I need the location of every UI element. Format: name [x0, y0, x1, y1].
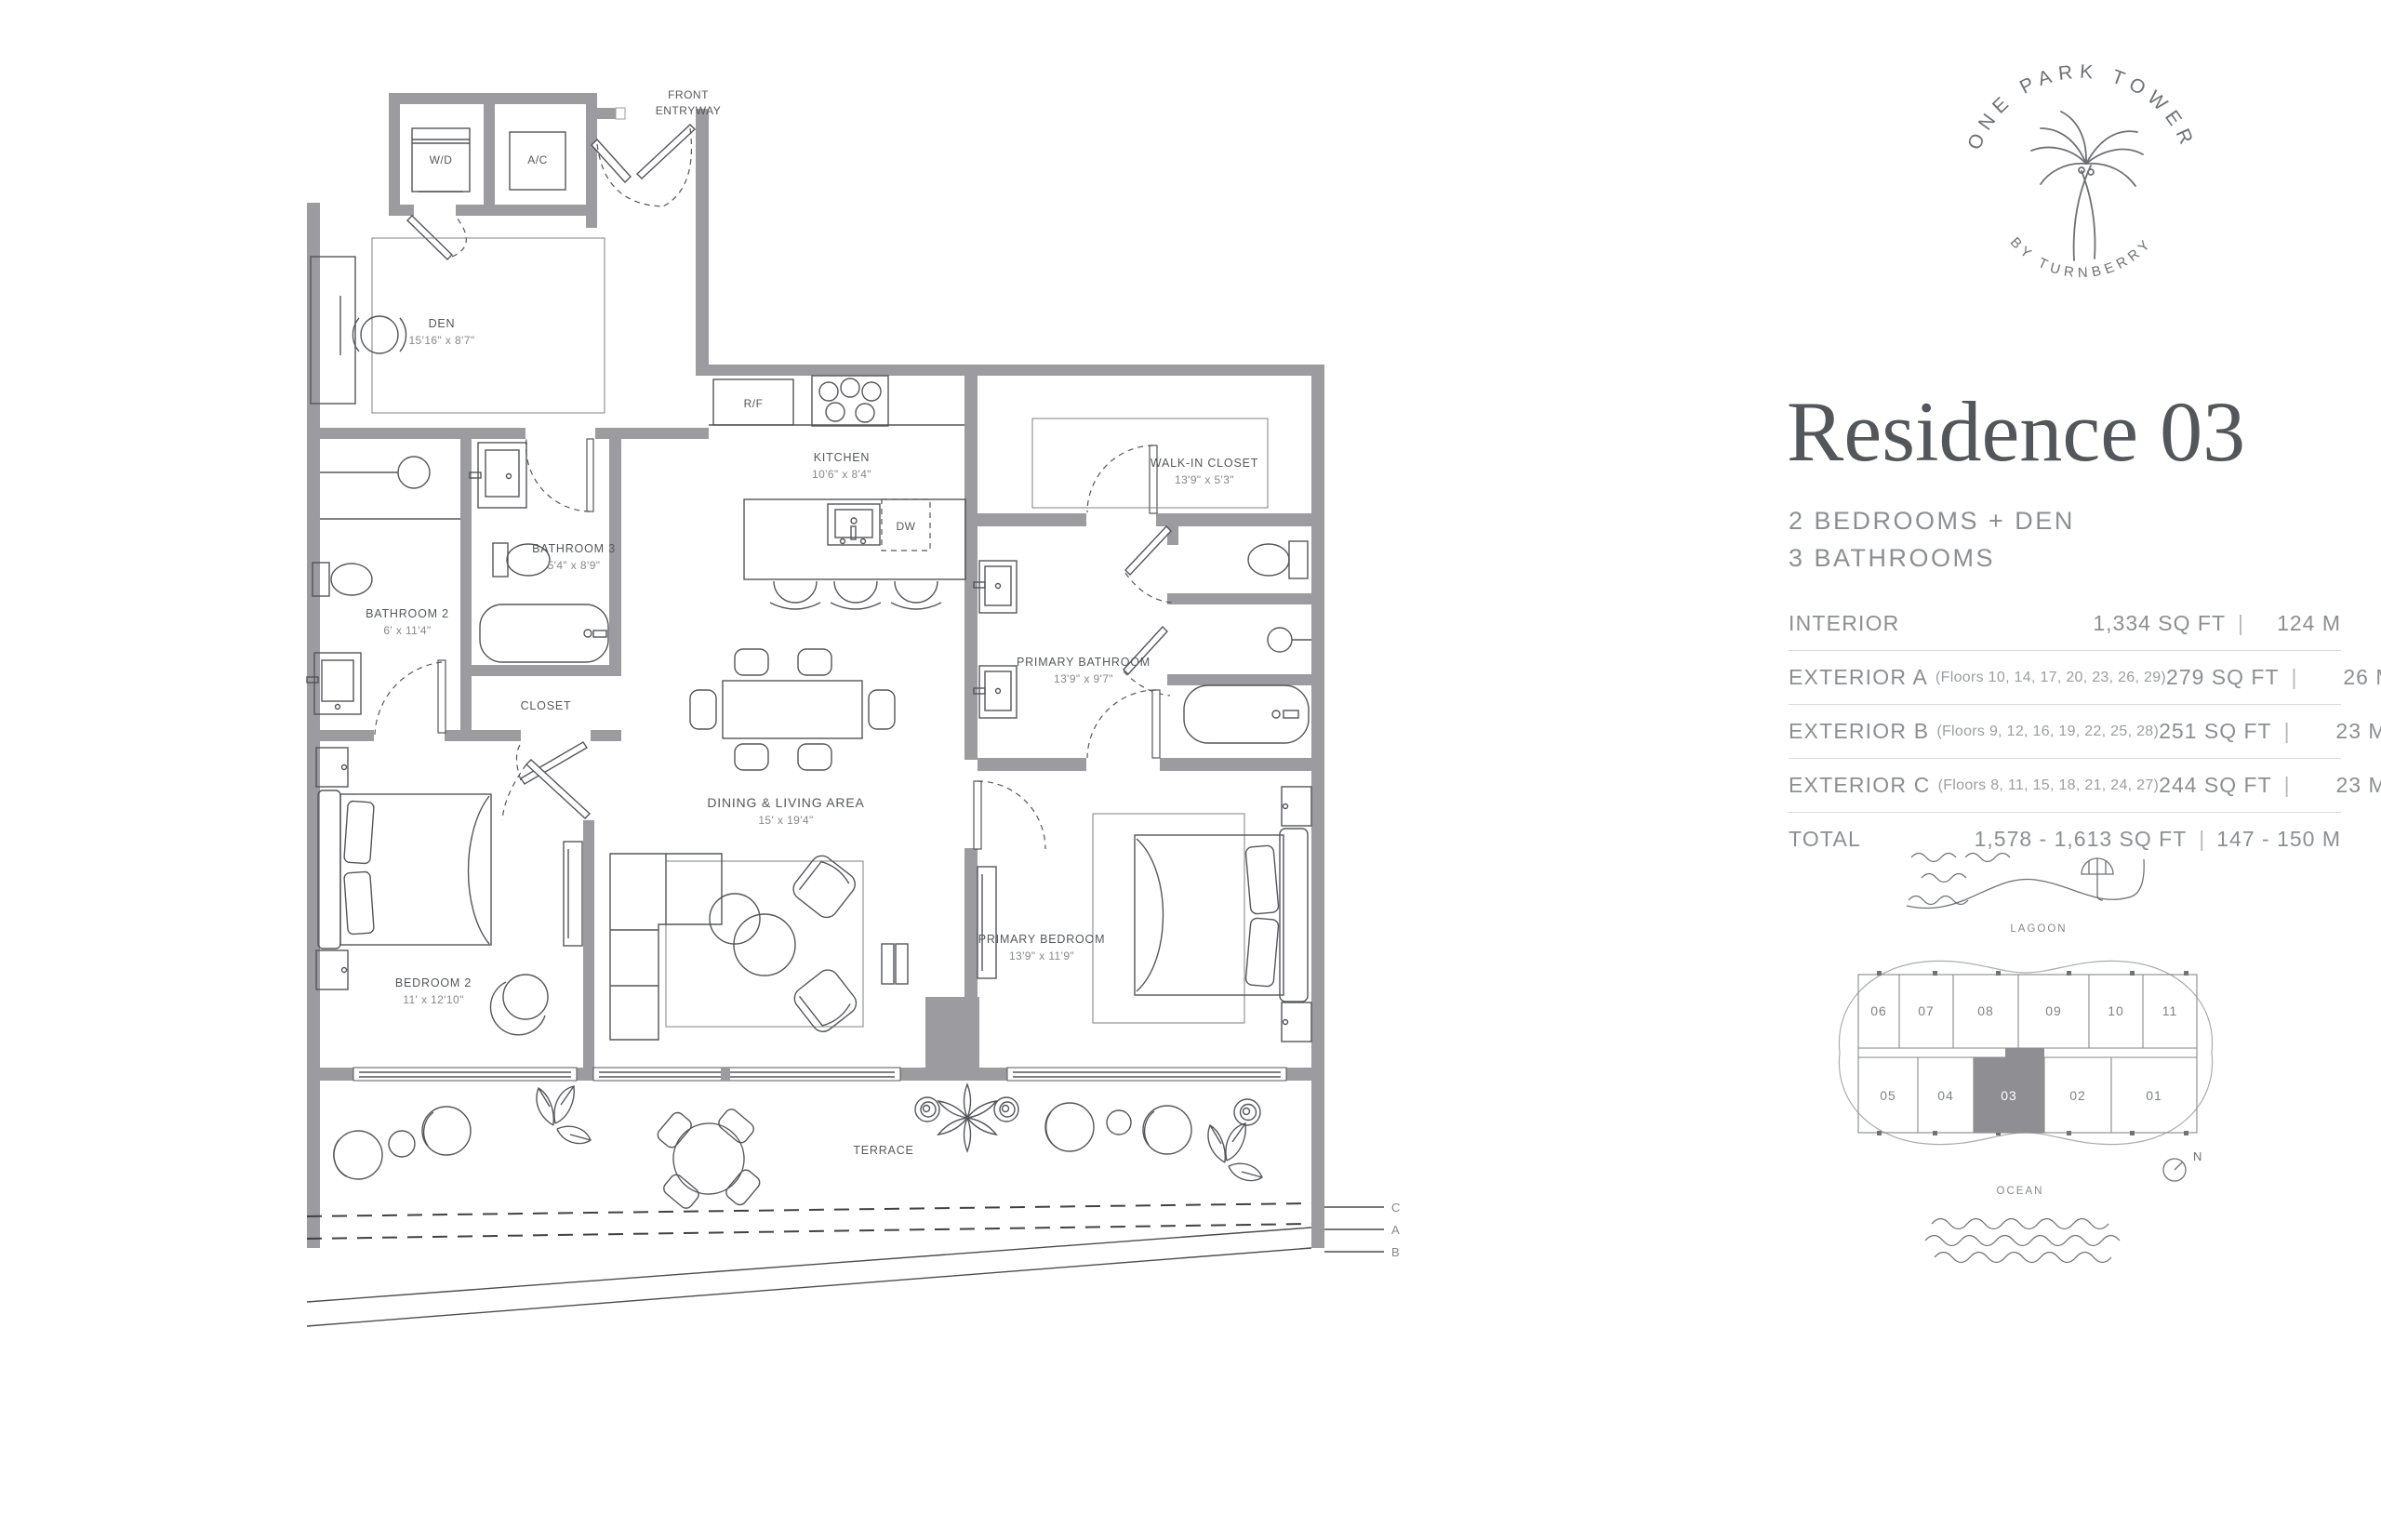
terrace-windows: [353, 1068, 1286, 1081]
unit-05: 05: [1880, 1088, 1896, 1103]
bedroom2-label: BEDROOM 2: [395, 976, 472, 989]
primary-bathroom-label: PRIMARY BATHROOM: [1017, 656, 1151, 669]
primary-bathroom-dims: 13'9" x 9'7": [1054, 672, 1113, 685]
terrace-label: TERRACE: [853, 1144, 913, 1157]
dining-living-dims: 15' x 19'4": [758, 814, 813, 827]
kitchen-dims: 10'6" x 8'4": [812, 468, 871, 481]
walk-in-closet-label: WALK-IN CLOSET: [1151, 457, 1258, 470]
ac-label: A/C: [527, 153, 548, 166]
lagoon-label: LAGOON: [2010, 923, 2067, 935]
svg-text:N: N: [2193, 1149, 2201, 1163]
walk-in-closet-dims: 13'9" x 5'3": [1175, 473, 1234, 486]
exterior-line-a-label: A: [1391, 1223, 1400, 1237]
exterior-line-b-label: B: [1391, 1245, 1400, 1259]
unit-10: 10: [2108, 1003, 2124, 1018]
residence-subtitle: 2 BEDROOMS + DEN 3 BATHROOMS: [1789, 502, 2075, 577]
lagoon-waves-icon: [1907, 854, 2144, 909]
logo-arc-bottom-text: BY TURNBERRY: [2007, 234, 2156, 281]
bedroom2-dims: 11' x 12'10": [403, 993, 463, 1006]
unit-03: 03: [2001, 1088, 2017, 1103]
table-row-exterior-c: EXTERIOR C (Floors 8, 11, 15, 18, 21, 24…: [1789, 759, 2341, 813]
ocean-waves-icon: [1925, 1219, 2120, 1263]
bathroom2-dims: 6' x 11'4": [383, 624, 431, 637]
kitchen-label: KITCHEN: [814, 451, 870, 464]
north-compass-icon: N: [2163, 1149, 2201, 1181]
bathroom2-label: BATHROOM 2: [366, 607, 449, 620]
exterior-line-c-label: C: [1391, 1201, 1400, 1215]
wd-label: W/D: [430, 153, 453, 166]
den-label: DEN: [429, 317, 456, 330]
unit-06: 06: [1870, 1003, 1887, 1018]
closet-label: CLOSET: [521, 699, 572, 712]
unit-04: 04: [1937, 1088, 1954, 1103]
unit-11: 11: [2162, 1003, 2178, 1018]
unit-08: 08: [1977, 1003, 1994, 1018]
bedrooms-line: 2 BEDROOMS + DEN: [1789, 502, 2075, 539]
table-row-interior: INTERIOR 1,334 SQ FT | 124 M: [1789, 597, 2341, 651]
kitchen-fixtures: [709, 376, 965, 609]
dining-living-label: DINING & LIVING AREA: [707, 795, 864, 810]
dw-label: DW: [897, 520, 916, 533]
floor-plan: FRONT ENTRYWAY W/D A/C R/F DW DEN 15'16"…: [298, 56, 1432, 1339]
palm-trees-icon: [2031, 112, 2143, 260]
bathrooms-line: 3 BATHROOMS: [1789, 539, 2075, 577]
unit-01: 01: [2146, 1088, 2162, 1103]
rf-label: R/F: [744, 397, 764, 410]
front-entryway-label-1: FRONT: [668, 88, 709, 101]
primary-bathroom-fixtures: [974, 541, 1311, 743]
primary-bedroom-dims: 13'9" x 11'9": [1009, 949, 1074, 962]
bedroom2-furniture: [316, 748, 582, 1035]
den-dims: 15'16" x 8'7": [408, 334, 474, 347]
building-key-plan: LAGOON 06 07 08 09 10 11 05 04 03 02 01 …: [1814, 818, 2362, 1339]
bathroom3-label: BATHROOM 3: [532, 542, 616, 555]
terrace-furniture: [334, 1082, 1262, 1236]
den-furniture: [311, 238, 605, 413]
table-row-exterior-a: EXTERIOR A (Floors 10, 14, 17, 20, 23, 2…: [1789, 651, 2341, 705]
unit-09: 09: [2045, 1003, 2062, 1018]
dining-living-furniture: [610, 649, 908, 1040]
front-entryway-label-2: ENTRYWAY: [656, 104, 721, 117]
logo-arc-top-text: ONE PARK TOWER: [1963, 61, 2200, 153]
ocean-label: OCEAN: [1997, 1186, 2044, 1197]
page-title: Residence 03: [1787, 389, 2245, 474]
bathroom2-fixtures: [307, 457, 460, 714]
one-park-tower-logo: ONE PARK TOWER BY TURNBERRY: [1936, 39, 2227, 318]
unit-07: 07: [1918, 1003, 1935, 1018]
table-row-exterior-b: EXTERIOR B (Floors 9, 12, 16, 19, 22, 25…: [1789, 705, 2341, 759]
terrace-edge-lines: [307, 1203, 1384, 1326]
unit-02: 02: [2069, 1088, 2086, 1103]
primary-bedroom-furniture: [978, 787, 1311, 1042]
primary-bedroom-label: PRIMARY BEDROOM: [978, 933, 1106, 946]
bathroom3-dims: 5'4" x 8'9": [548, 559, 601, 572]
